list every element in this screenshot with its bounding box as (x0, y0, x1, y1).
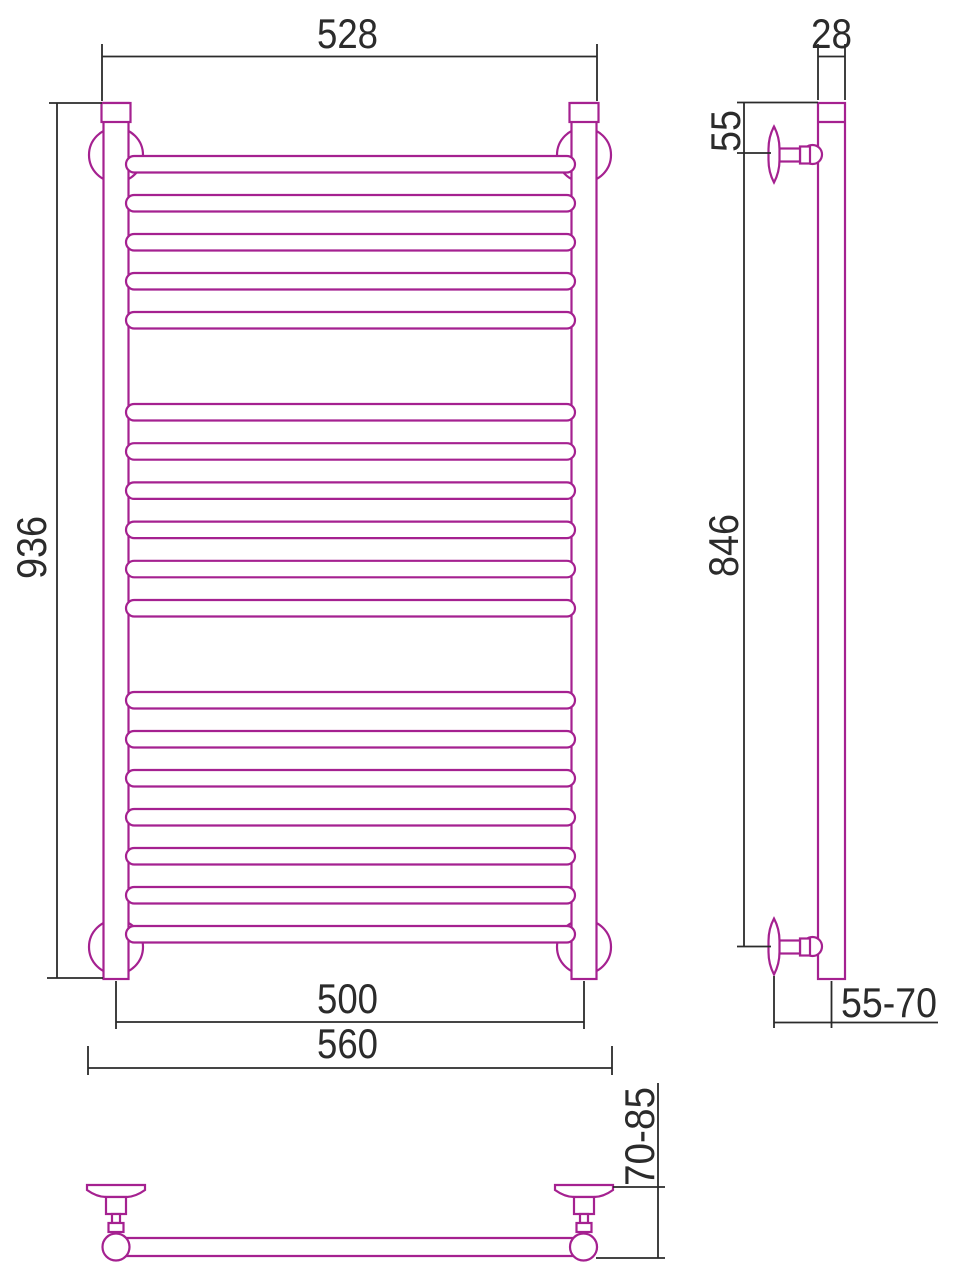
bracket-collar (800, 939, 810, 956)
bracket-flange (555, 1185, 613, 1197)
side-post-tube (818, 103, 845, 979)
bracket-collar (109, 1223, 124, 1232)
bracket-collar (577, 1223, 592, 1232)
rung-group-bottom (126, 692, 575, 943)
rung (126, 273, 575, 290)
bracket-flange (87, 1185, 145, 1197)
plan-post-section-left (103, 1234, 130, 1261)
rung (126, 809, 575, 826)
plan-wall-bracket-left (87, 1185, 145, 1232)
rung (126, 195, 575, 212)
dim-label-wall-to-axis: 55-70 (841, 979, 937, 1026)
rung (126, 770, 575, 787)
bracket-stem (574, 1197, 594, 1214)
dim-label-tube-depth: 28 (811, 10, 852, 57)
left-post (104, 103, 129, 979)
rung (126, 692, 575, 709)
rung-group-top (126, 156, 575, 329)
dim-label-bracket-span: 846 (700, 514, 747, 577)
rung (126, 404, 575, 421)
side-wall-bracket-top (769, 127, 823, 183)
dimension-labels: 528 28 936 55 846 500 560 55-70 70-85 (8, 10, 937, 1186)
plan-wall-bracket-right (555, 1185, 613, 1232)
dim-label-height: 936 (8, 516, 55, 579)
rung (126, 926, 575, 943)
rung (126, 522, 575, 539)
right-post (572, 103, 597, 979)
left-post-cap (102, 103, 131, 122)
dim-label-overall-width: 560 (317, 1020, 378, 1067)
rung (126, 887, 575, 904)
rung (126, 443, 575, 460)
right-post-cap (570, 103, 599, 122)
front-view (89, 103, 611, 979)
rung (126, 234, 575, 251)
bracket-stem (106, 1197, 126, 1214)
bracket-flange (769, 127, 780, 183)
rung (126, 312, 575, 329)
technical-drawing-page: 528 28 936 55 846 500 560 55-70 70-85 (0, 0, 958, 1280)
towel-rail-technical-drawing: 528 28 936 55 846 500 560 55-70 70-85 (0, 0, 958, 1280)
dim-label-wall-to-front: 70-85 (616, 1087, 663, 1186)
bracket-stem (779, 149, 800, 162)
bracket-stem (779, 941, 800, 954)
bracket-collar (800, 147, 810, 164)
bracket-neck (112, 1214, 120, 1223)
rung (126, 156, 575, 173)
plan-post-section-right (570, 1234, 597, 1261)
bracket-neck (580, 1214, 588, 1223)
rung (126, 848, 575, 865)
rung (126, 600, 575, 617)
rung (126, 561, 575, 578)
side-view (769, 103, 846, 979)
plan-view (87, 1185, 613, 1261)
plan-rung-bar (103, 1238, 597, 1256)
dim-line-936 (47, 103, 103, 978)
dim-label-bracket-centers-width: 500 (317, 975, 378, 1022)
side-wall-bracket-bottom (769, 919, 823, 975)
dim-label-top-to-bracket: 55 (702, 110, 749, 152)
rung (126, 482, 575, 499)
rung-group-middle (126, 404, 575, 617)
dimension-lines (47, 44, 938, 1258)
dim-label-top-width: 528 (317, 10, 378, 57)
rung (126, 731, 575, 748)
